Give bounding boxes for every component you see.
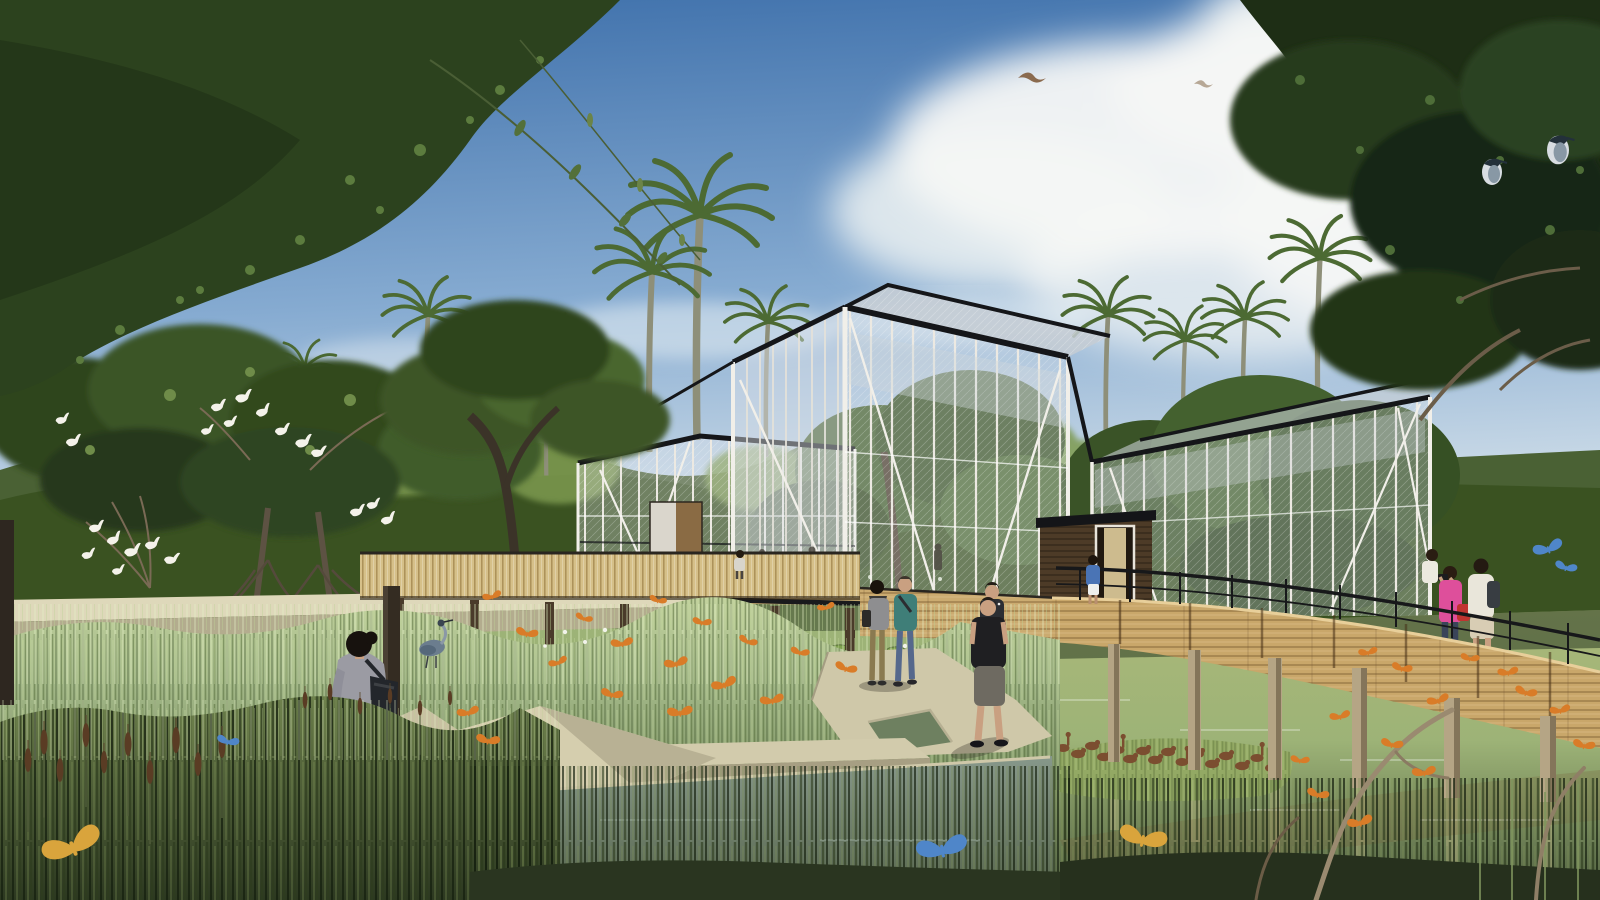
wetland-aviary-rendering <box>0 0 1600 900</box>
rendering-canvas: Wetland aviary pavilions — architectural… <box>0 0 1600 900</box>
aviary-left-door <box>650 502 702 560</box>
reeds-foreground-center <box>470 766 1070 900</box>
